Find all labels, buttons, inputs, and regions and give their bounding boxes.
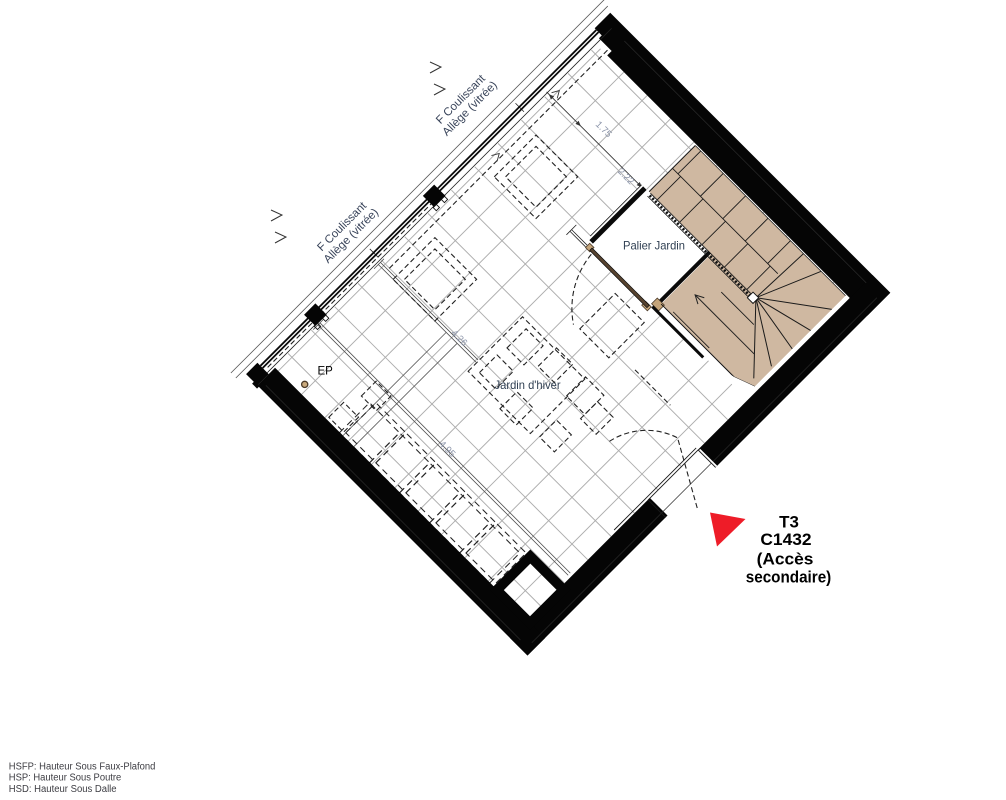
- svg-text:T3: T3: [779, 514, 799, 532]
- svg-text:secondaire): secondaire): [746, 569, 832, 587]
- svg-text:C1432: C1432: [760, 531, 811, 549]
- svg-text:EP: EP: [318, 366, 334, 378]
- svg-text:HSD: Hauteur Sous Dalle: HSD: Hauteur Sous Dalle: [9, 784, 117, 795]
- svg-text:Palier Jardin: Palier Jardin: [623, 239, 685, 252]
- svg-text:(Accès: (Accès: [757, 551, 814, 569]
- svg-text:Jardin d'hiver: Jardin d'hiver: [495, 379, 561, 392]
- svg-text:HSP: Hauteur Sous Poutre: HSP: Hauteur Sous Poutre: [9, 773, 122, 784]
- svg-text:HSFP: Hauteur Sous Faux-Plafon: HSFP: Hauteur Sous Faux-Plafond: [9, 761, 156, 772]
